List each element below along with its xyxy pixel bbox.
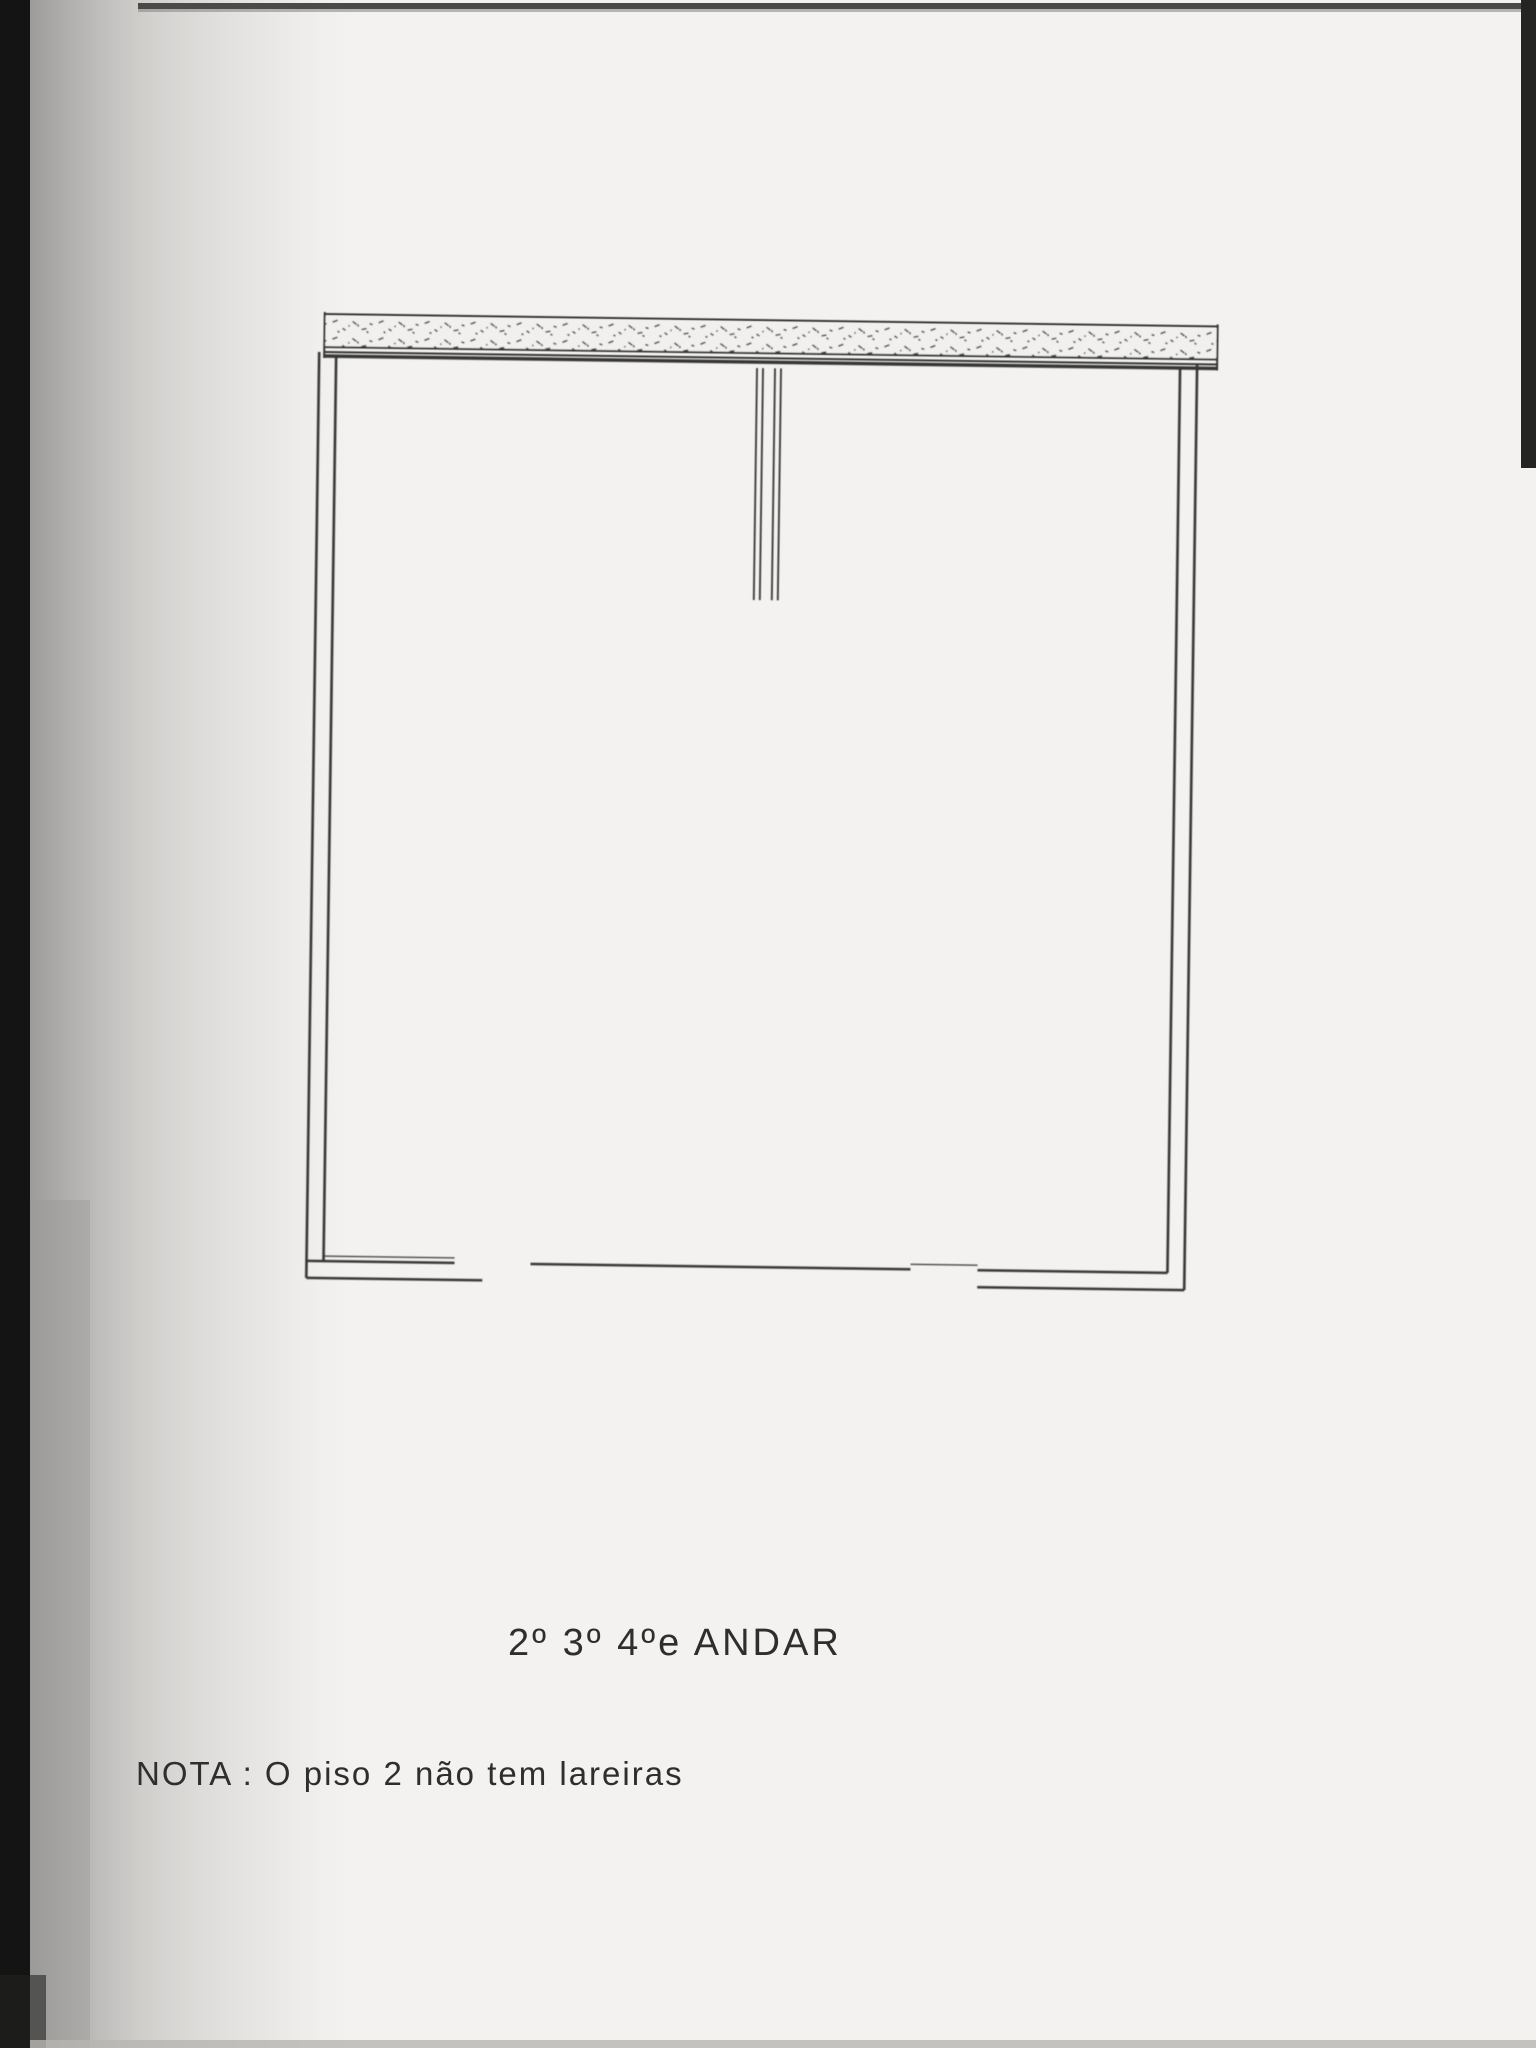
svg-text:2º 3º 4ºe ANDAR: 2º 3º 4ºe ANDAR <box>508 1622 842 1664</box>
svg-text:NOTA : O piso 2 não tem la: NOTA : O piso 2 não tem lareiras <box>136 1755 684 1792</box>
